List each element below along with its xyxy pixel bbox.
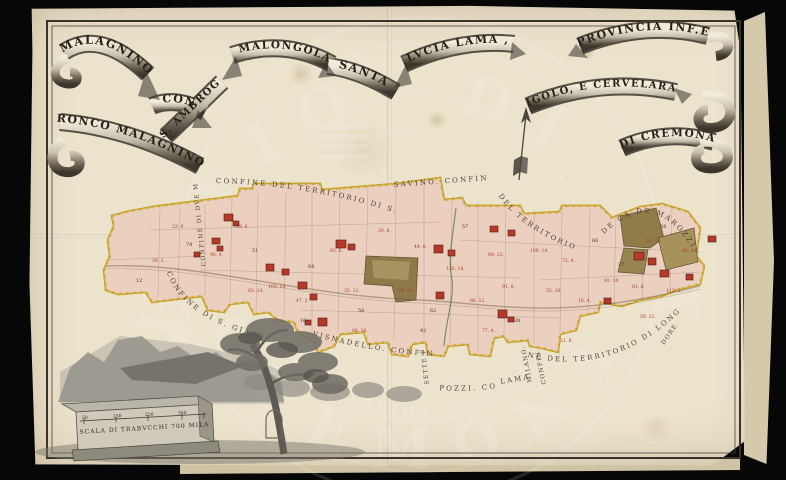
- scale-tick-label: 150: [113, 413, 122, 419]
- parcel-number: 74: [186, 242, 192, 248]
- parcel-number: 21. 8.: [560, 338, 573, 344]
- parcel-number: 64: [308, 264, 314, 270]
- parcel-number: 66: [592, 238, 598, 244]
- parcel-number: 42: [420, 328, 426, 334]
- building-marker: [336, 240, 346, 248]
- parcel-number: 55. 16.: [546, 288, 562, 294]
- parcel-number: 12: [136, 278, 142, 284]
- parcel-number: 18. 4.: [578, 298, 591, 304]
- parcel-number: 29. 6.: [378, 228, 391, 234]
- building-marker: [282, 269, 289, 275]
- parcel-number: 65. 14.: [248, 288, 264, 294]
- parcel-number: 23. 8.: [172, 224, 185, 230]
- building-marker: [604, 298, 611, 304]
- parcel-number: 58: [358, 308, 364, 314]
- building-marker: [490, 226, 498, 232]
- parcel-number: 39. 2.: [152, 258, 165, 264]
- building-marker: [266, 264, 274, 271]
- building-marker: [648, 258, 656, 265]
- building-marker: [498, 310, 507, 318]
- building-marker: [318, 318, 327, 326]
- parcel-number: 81. 6.: [632, 284, 645, 290]
- building-marker: [708, 236, 716, 242]
- parcel-number: 47. 2.: [296, 298, 309, 304]
- parcel-number: 113. 2.: [666, 288, 682, 294]
- parcel-number: 52. 10.: [646, 238, 662, 244]
- parcel-number: 62: [430, 308, 436, 314]
- parcel-number: 120. 14.: [446, 266, 465, 272]
- parcel-number: 27: [618, 262, 624, 268]
- parcel-number: 72. 4.: [562, 258, 575, 264]
- parcel-number: 88. 10.: [352, 328, 368, 334]
- parcel-number: 91. 8.: [502, 284, 515, 290]
- building-marker: [212, 238, 220, 244]
- parcel-number: 109. 14.: [530, 248, 549, 254]
- parcel-number: 93. 10.: [604, 278, 620, 284]
- building-marker: [224, 214, 233, 221]
- parcel-number: 69. 12.: [488, 252, 504, 258]
- parcel-number: 35. 12.: [344, 288, 360, 294]
- building-marker: [298, 282, 307, 289]
- building-marker: [508, 230, 515, 236]
- parcel-number: 76. 18.: [398, 288, 414, 294]
- parcel-number: 29. 6.: [236, 224, 249, 230]
- parcel-number: 16: [300, 318, 306, 324]
- building-marker: [436, 292, 444, 299]
- parcel-number: 77. 4.: [482, 328, 495, 334]
- parcel-number: 59. 12.: [640, 314, 656, 320]
- parcel-number: 83. 6.: [330, 248, 343, 254]
- building-marker: [448, 250, 455, 256]
- parcel-number: 44. 8.: [414, 244, 427, 250]
- parcel-number: 86. 12.: [470, 298, 486, 304]
- building-marker: [194, 252, 200, 257]
- scale-tick-label: 50: [82, 415, 88, 421]
- parcel-number: 57: [462, 224, 468, 230]
- parcel-number: 103. 14.: [268, 284, 287, 290]
- parcel-number: 96. 4.: [210, 252, 223, 258]
- archive-photo-stage: ARCHIVIO DI STATO CREMONA REPUBBLICA ITA…: [0, 0, 786, 480]
- building-marker: [634, 252, 644, 260]
- parcel-number: 51: [252, 248, 258, 254]
- parcel-number: 38: [514, 318, 520, 324]
- scale-tick-label: 350: [178, 410, 187, 416]
- building-marker: [660, 270, 669, 277]
- scale-tick-label: 250: [145, 412, 154, 418]
- building-marker: [434, 245, 443, 253]
- building-marker: [686, 274, 693, 280]
- building-marker: [348, 244, 355, 250]
- parcel-number: 34: [660, 224, 666, 230]
- map-artwork: ARCHIVIO DI STATO CREMONA REPUBBLICA ITA…: [0, 0, 786, 480]
- building-marker: [310, 294, 317, 300]
- building-marker: [217, 246, 223, 251]
